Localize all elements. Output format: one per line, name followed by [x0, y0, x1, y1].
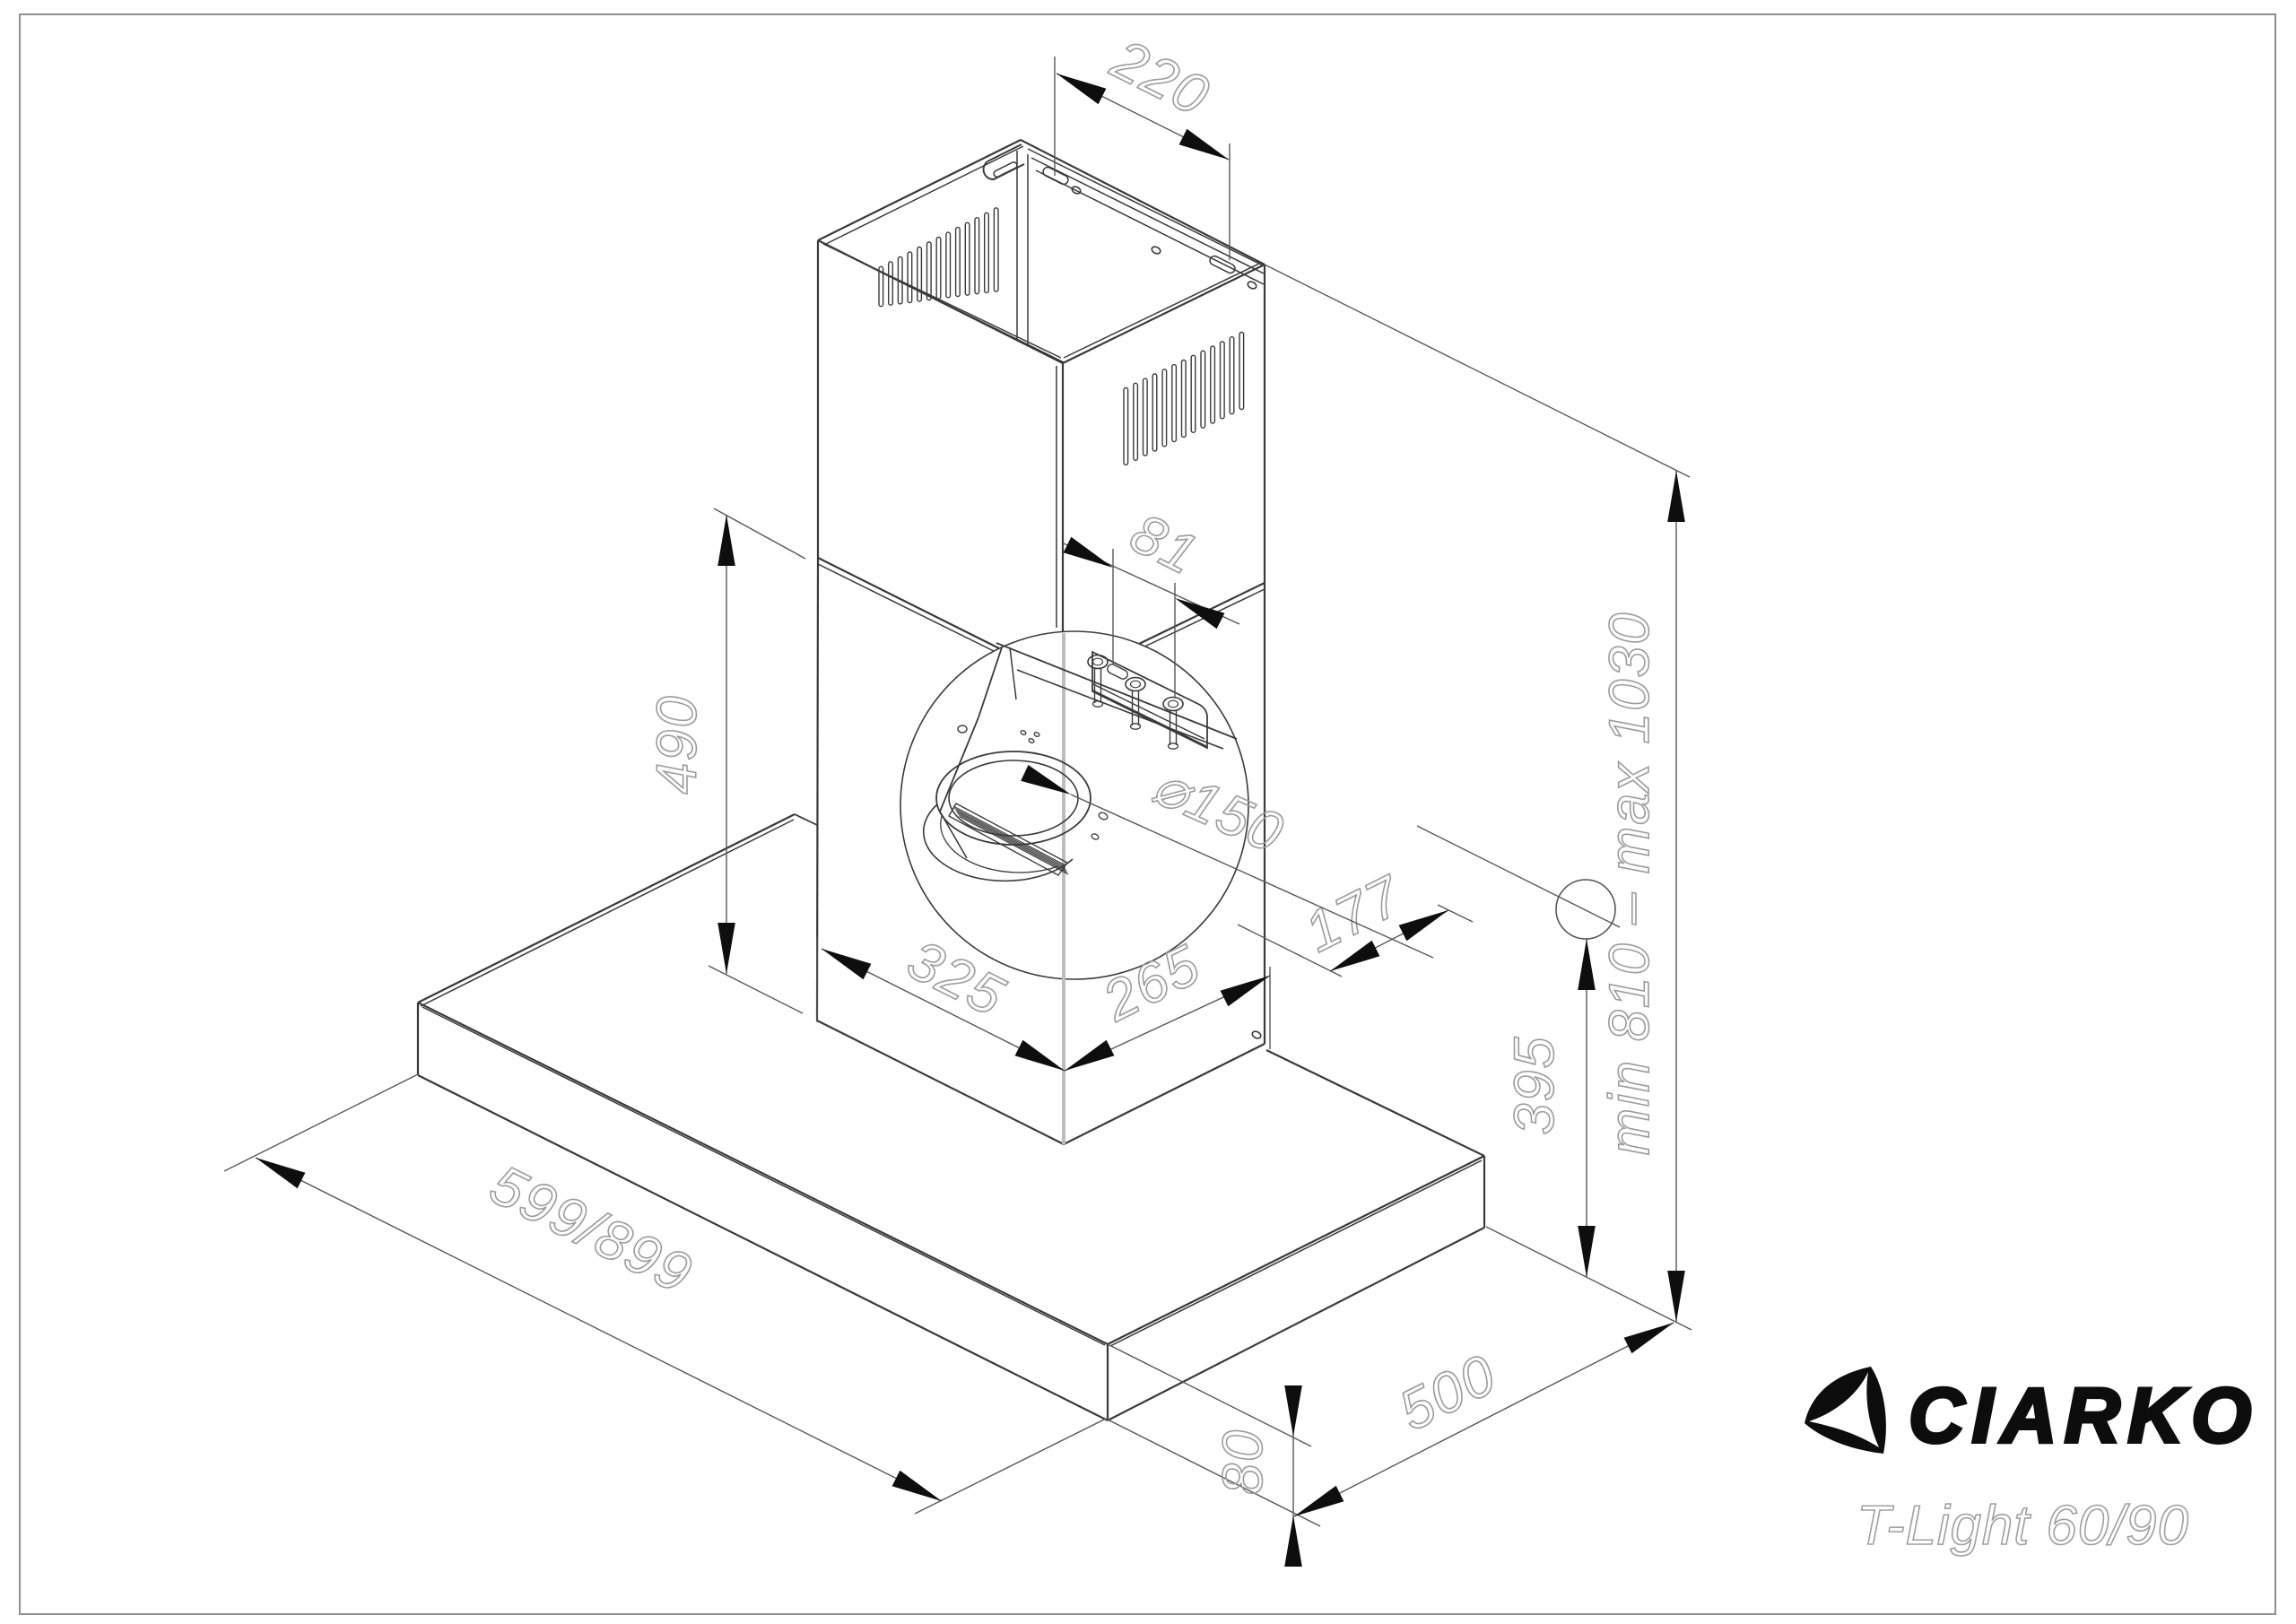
svg-text:490: 490	[646, 694, 709, 794]
svg-text:177: 177	[1295, 864, 1413, 964]
svg-text:395: 395	[1503, 1035, 1566, 1134]
svg-text:599/899: 599/899	[481, 1153, 703, 1307]
svg-text:500: 500	[1389, 1342, 1507, 1443]
svg-text:81: 81	[1121, 501, 1209, 587]
svg-text:T-Light 60/90: T-Light 60/90	[1857, 1495, 2188, 1557]
svg-text:220: 220	[1101, 28, 1220, 129]
svg-text:CIARKO: CIARKO	[1909, 1373, 2253, 1459]
svg-text:min 810 – max 1030: min 810 – max 1030	[1598, 612, 1661, 1156]
svg-text:80: 80	[1212, 1429, 1274, 1495]
